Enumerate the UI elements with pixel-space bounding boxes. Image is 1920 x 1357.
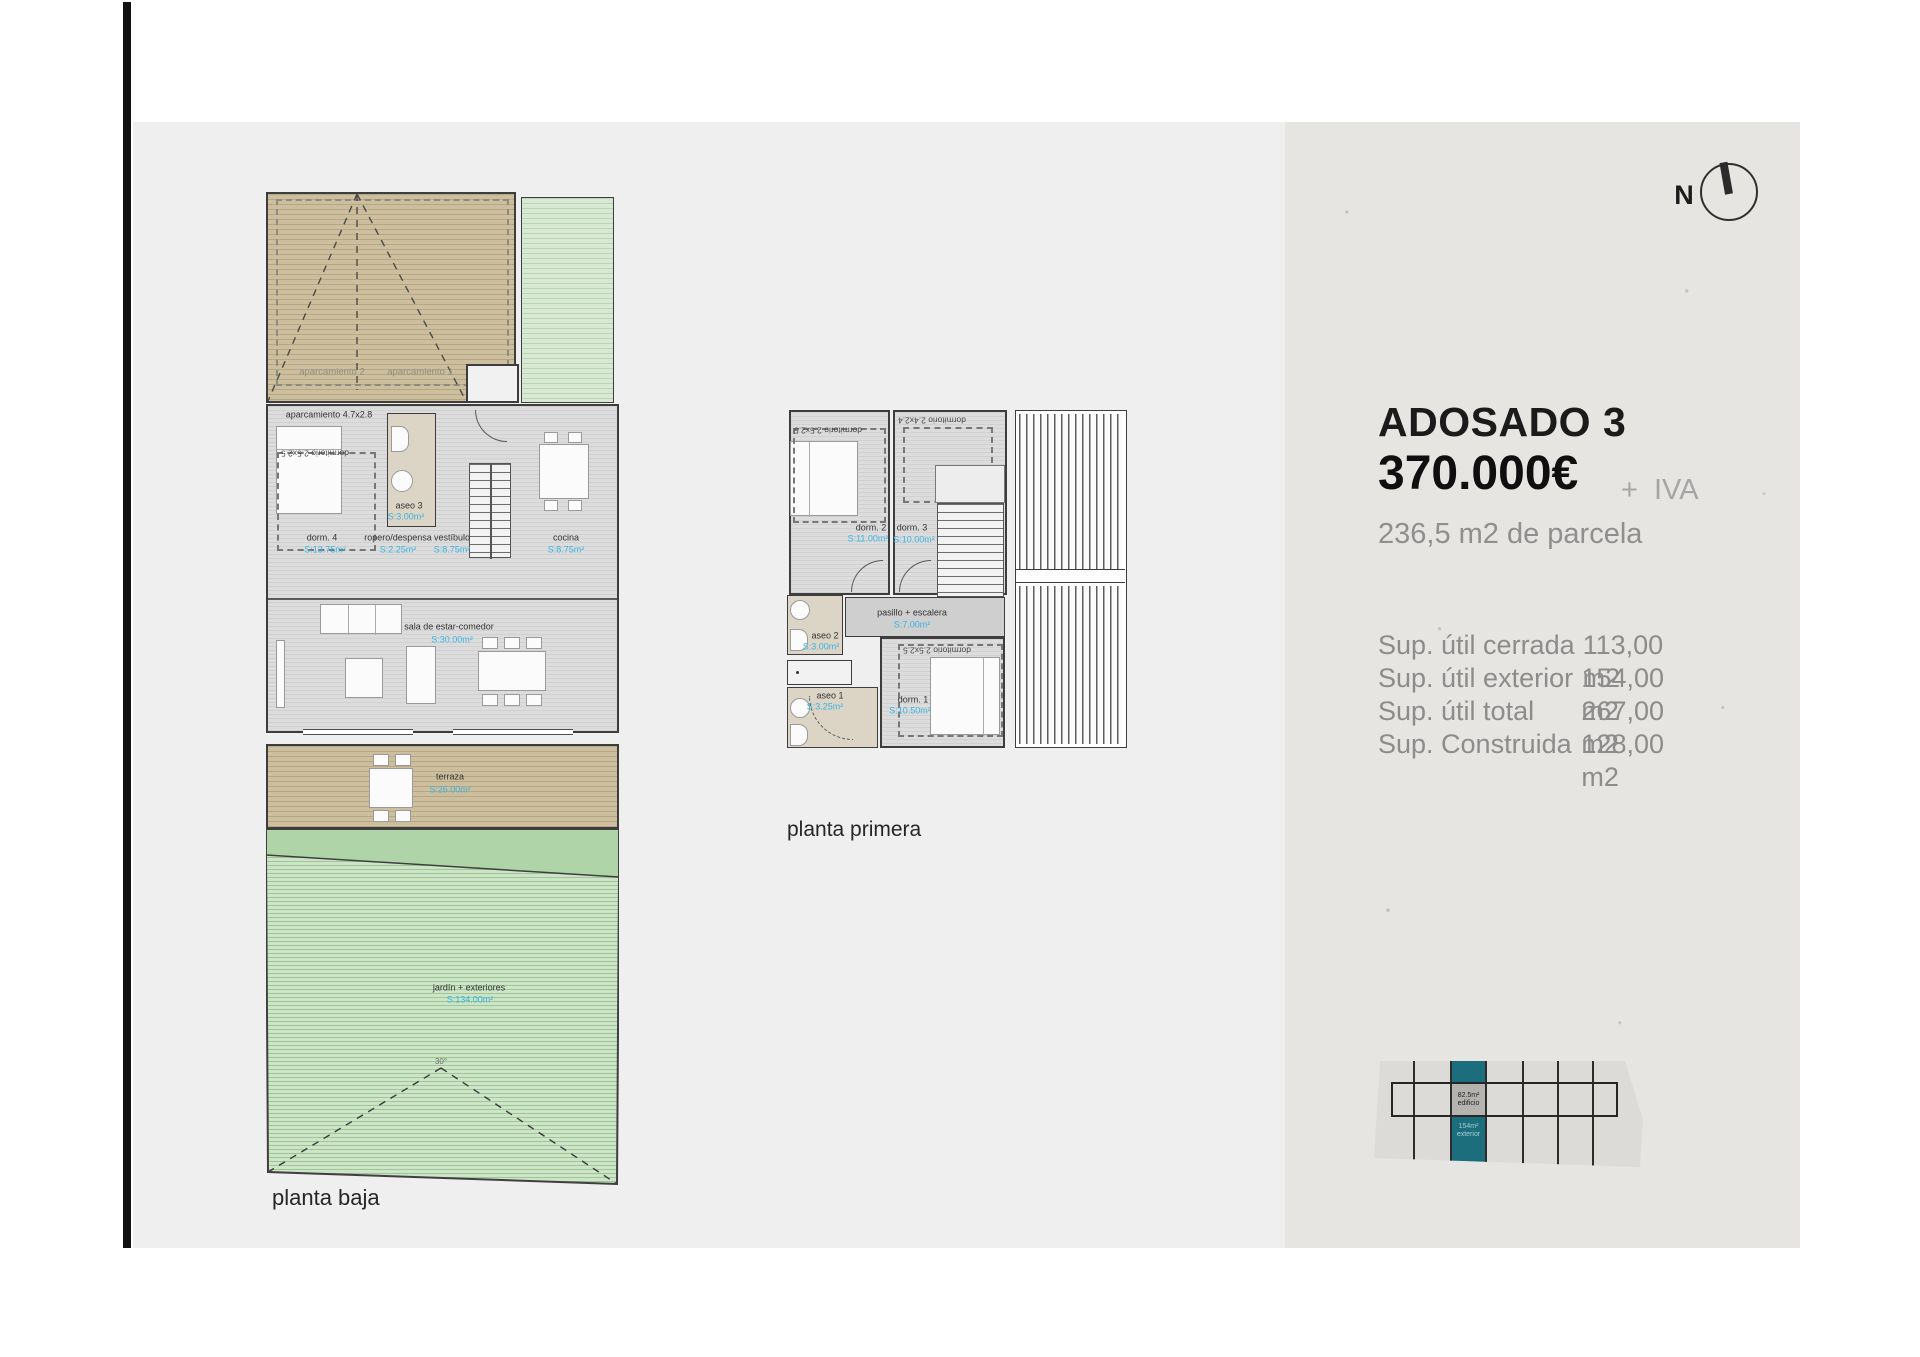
aseo3-label: aseo 3 — [395, 502, 422, 511]
louvered-terrace — [1015, 410, 1127, 748]
stairs-icon — [469, 463, 511, 558]
ropero-label: ropero/despensa — [364, 534, 432, 543]
chair-icon — [482, 694, 498, 706]
surface-table: Sup. útil cerrada 113,00 m2 Sup. útil ex… — [1378, 629, 1708, 761]
plot-divider — [1485, 1058, 1487, 1176]
dorm4-area: S:13.75m² — [304, 546, 346, 555]
surface-label: Sup. útil total — [1378, 695, 1581, 728]
tv-unit-icon — [406, 646, 436, 704]
aseo2-area: S:3.00m² — [803, 643, 840, 652]
surface-value: 113,00 m2 — [1583, 629, 1708, 662]
tax-note: + IVA — [1621, 474, 1699, 507]
surface-label: Sup. Construida — [1378, 728, 1581, 761]
jardin-area: S:134.00m² — [447, 996, 494, 1005]
louver-panel-top — [1019, 414, 1122, 569]
siteplan: 82.5m² edificio 154m² exterior — [1370, 1058, 1655, 1176]
dorm2-dashed-zone — [793, 428, 886, 523]
first-floor-caption: planta primera — [787, 818, 921, 842]
unit-exterior-label: exterior — [1457, 1131, 1480, 1139]
stairs-icon — [937, 503, 1004, 597]
chair-icon — [504, 637, 520, 649]
surface-label: Sup. útil exterior — [1378, 662, 1581, 695]
info-panel: N ADOSADO 3 370.000€ + IVA 236,5 m2 de p… — [1285, 122, 1800, 1248]
unit-exterior-area: 154m² — [1459, 1123, 1479, 1131]
dorm3-area: S:10.00m² — [893, 536, 935, 545]
dorm1-dashed-zone — [898, 644, 1003, 737]
plot-divider — [1413, 1058, 1415, 1176]
plot-divider — [1557, 1058, 1559, 1176]
surface-value: 154,00 m2 — [1581, 662, 1708, 695]
dorm4-label: dorm. 4 — [307, 534, 338, 543]
terraza-area-value: S:26.00m² — [429, 786, 471, 795]
parcel-size: 236,5 m2 de parcela — [1378, 518, 1642, 551]
dorm1-size-note: dormitorio 2.5x2.5 — [903, 646, 971, 655]
surface-value: 128,00 m2 — [1581, 728, 1708, 761]
dorm3-size-note: dormitorio 2.4x2.4 — [898, 416, 966, 425]
drain-dot — [796, 671, 799, 674]
chair-icon — [544, 500, 558, 511]
side-green-strip — [521, 197, 614, 403]
roof-angle-label: 30° — [435, 1058, 447, 1066]
plan-sheet: aparcamiento 2 aparcamiento 1 aparcamien… — [0, 0, 1920, 1357]
dorm4-size-note: dormitorio 2.5x2.5 — [281, 449, 349, 458]
kitchen-table-icon — [539, 444, 589, 499]
chair-icon — [526, 694, 542, 706]
pasillo-label: pasillo + escalera — [877, 609, 947, 618]
unit-title: ADOSADO 3 — [1378, 400, 1626, 445]
surface-row: Sup. útil cerrada 113,00 m2 — [1378, 629, 1708, 662]
window-icon — [453, 729, 573, 735]
sheet-canvas: aparcamiento 2 aparcamiento 1 aparcamien… — [133, 122, 1800, 1248]
dorm2-label: dorm. 2 — [856, 524, 887, 533]
plot-divider — [1450, 1058, 1452, 1176]
floorplan-planta-primera: dormitorio 2.5x2.5 dorm. 2 S:11.00m² dor… — [783, 398, 1133, 848]
pasillo-area: S:7.00m² — [894, 621, 931, 630]
building-footprint-outline — [1391, 1082, 1618, 1117]
vestibulo-label: vestíbulo — [434, 534, 470, 543]
aseo2-label: aseo 2 — [811, 632, 838, 641]
surface-row: Sup. Construida 128,00 m2 — [1378, 728, 1708, 761]
closet-block — [935, 465, 1005, 503]
sink-icon — [790, 600, 810, 620]
garden-area — [266, 829, 619, 1185]
highlighted-unit — [1450, 1058, 1487, 1176]
aseo1-area: S:3.25m² — [807, 703, 844, 712]
terraza-label: terraza — [436, 773, 464, 782]
chair-icon — [373, 810, 389, 822]
unit-building-area: 82.5m² — [1458, 1092, 1480, 1100]
dorm1-area: S:10.50m² — [889, 707, 931, 716]
plot-divider — [1592, 1058, 1594, 1176]
chair-icon — [504, 694, 520, 706]
plot-divider — [1522, 1058, 1524, 1176]
surface-label: Sup. útil cerrada — [1378, 629, 1583, 662]
terrace-table-icon — [369, 768, 413, 808]
sofa-icon — [320, 604, 402, 634]
floorplan-planta-baja: aparcamiento 2 aparcamiento 1 aparcamien… — [263, 188, 620, 1228]
cocina-area: S:8.75m² — [548, 546, 585, 555]
unit-exterior-tag: 154m² exterior — [1450, 1118, 1487, 1144]
sala-label: sala de estar-comedor — [404, 623, 494, 632]
cocina-label: cocina — [553, 534, 579, 543]
unit-price: 370.000€ — [1378, 448, 1578, 501]
ground-floor-caption: planta baja — [272, 1185, 380, 1211]
chair-icon — [544, 432, 558, 443]
aseo1-label: aseo 1 — [816, 692, 843, 701]
dorm2-size-note: dormitorio 2.5x2.5 — [794, 426, 862, 435]
surface-row: Sup. útil total 267,00 m2 — [1378, 695, 1708, 728]
entry-porch — [466, 364, 519, 403]
chair-icon — [526, 637, 542, 649]
aseo3-area: S:3.00m² — [388, 513, 425, 522]
toilet-icon — [391, 426, 409, 452]
louver-divider — [1016, 569, 1125, 583]
vestibulo-area: S:8.75m² — [434, 546, 471, 555]
unit-building-label: edificio — [1458, 1100, 1480, 1108]
unit-building-tag: 82.5m² edificio — [1452, 1084, 1485, 1115]
surface-row: Sup. útil exterior 154,00 m2 — [1378, 662, 1708, 695]
chair-icon — [482, 637, 498, 649]
chair-icon — [373, 754, 389, 766]
surface-value: 267,00 m2 — [1581, 695, 1708, 728]
chair-icon — [395, 810, 411, 822]
toilet-icon — [790, 724, 808, 746]
sink-icon — [391, 470, 413, 492]
stair-rail — [490, 464, 492, 559]
jardin-label: jardín + exteriores — [433, 984, 505, 993]
window-icon — [303, 729, 413, 735]
sofa-line — [348, 605, 349, 635]
parking-stall-1-label: aparcamiento 1 — [387, 367, 452, 377]
sofa-line — [375, 605, 376, 635]
utility-room — [787, 660, 852, 685]
sala-area: S:30.00m² — [431, 636, 473, 645]
chair-icon — [395, 754, 411, 766]
chair-icon — [568, 500, 582, 511]
parking-size-note: aparcamiento 4.7x2.8 — [286, 411, 373, 420]
compass-north-label: N — [1670, 180, 1698, 211]
interior-wall — [268, 598, 617, 600]
dorm3-label: dorm. 3 — [897, 524, 928, 533]
dining-table-icon — [478, 651, 546, 691]
sideboard-icon — [276, 640, 285, 708]
dorm2-area: S:11.00m² — [848, 535, 889, 544]
left-rule-bar — [123, 2, 131, 1248]
chair-icon — [568, 432, 582, 443]
coffee-table-icon — [345, 658, 383, 698]
parking-stall-2-label: aparcamiento 2 — [299, 367, 364, 377]
ropero-area: S:2.25m² — [380, 546, 417, 555]
dorm1-label: dorm. 1 — [898, 696, 929, 705]
louver-panel-bottom — [1019, 586, 1122, 744]
